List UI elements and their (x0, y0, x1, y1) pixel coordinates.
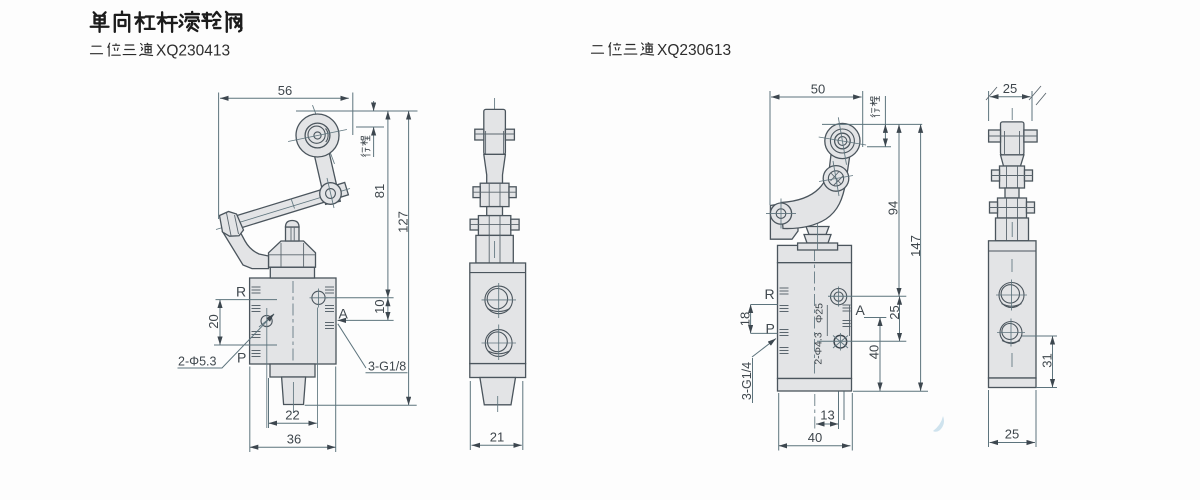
svg-text:A: A (339, 306, 349, 322)
svg-text:20: 20 (206, 314, 221, 328)
svg-text:R: R (765, 286, 775, 302)
svg-text:2-Φ5.3: 2-Φ5.3 (178, 355, 217, 369)
svg-text:Φ25: Φ25 (814, 303, 826, 323)
svg-text:18: 18 (738, 312, 753, 326)
svg-text:50: 50 (811, 82, 825, 97)
svg-text:3-G1/4: 3-G1/4 (740, 362, 754, 400)
svg-text:XQ230613: XQ230613 (657, 42, 731, 59)
svg-text:31: 31 (1040, 353, 1055, 367)
svg-text:25: 25 (887, 305, 902, 319)
svg-text:22: 22 (285, 408, 299, 423)
svg-text:2-Φ4.3: 2-Φ4.3 (813, 332, 825, 364)
svg-text:P: P (766, 321, 775, 337)
svg-text:40: 40 (867, 345, 882, 359)
svg-text:3-G1/8: 3-G1/8 (368, 360, 406, 374)
svg-text:R: R (236, 284, 246, 300)
svg-text:25: 25 (1005, 427, 1019, 442)
svg-text:127: 127 (396, 211, 411, 233)
svg-text:A: A (856, 302, 866, 318)
svg-text:147: 147 (908, 235, 923, 257)
svg-text:P: P (237, 350, 246, 366)
svg-text:XQ230413: XQ230413 (156, 43, 230, 60)
svg-text:21: 21 (490, 430, 504, 445)
svg-text:94: 94 (886, 201, 901, 215)
svg-text:56: 56 (278, 83, 292, 98)
svg-text:25: 25 (1003, 81, 1017, 96)
svg-text:81: 81 (372, 184, 387, 198)
svg-text:13: 13 (820, 408, 834, 423)
svg-text:40: 40 (808, 430, 822, 445)
svg-text:36: 36 (287, 432, 301, 447)
svg-text:10: 10 (372, 299, 387, 313)
